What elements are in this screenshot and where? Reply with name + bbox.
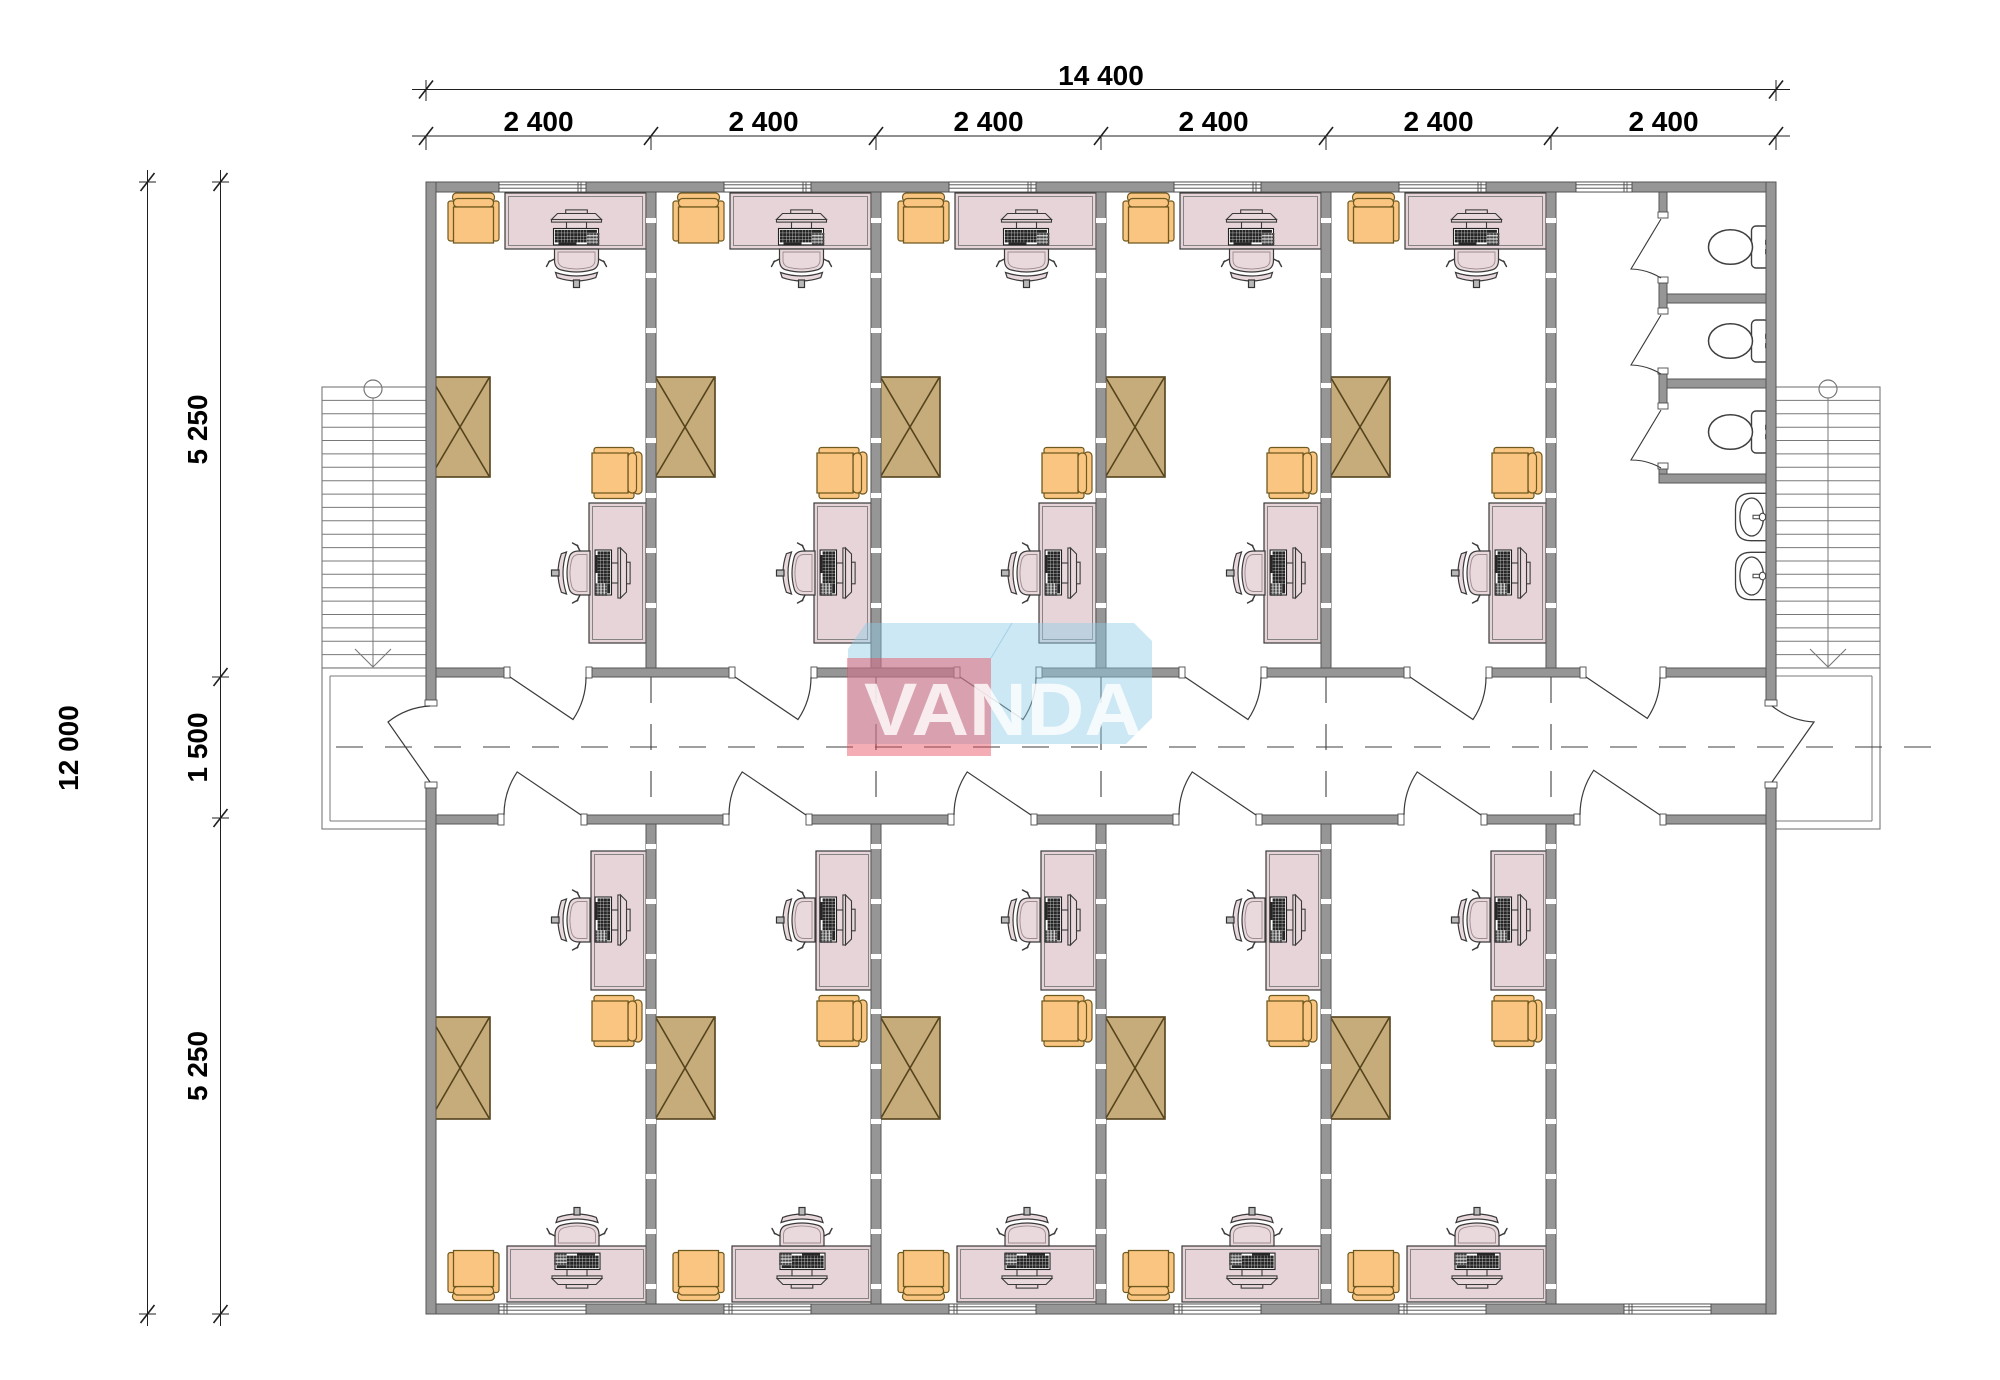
- svg-text:2 400: 2 400: [953, 106, 1023, 137]
- svg-text:1 500: 1 500: [182, 712, 213, 782]
- svg-text:VANDA: VANDA: [864, 668, 1142, 751]
- svg-text:2 400: 2 400: [1403, 106, 1473, 137]
- svg-text:5 250: 5 250: [182, 394, 213, 464]
- svg-text:2 400: 2 400: [1178, 106, 1248, 137]
- svg-text:2 400: 2 400: [728, 106, 798, 137]
- svg-text:2 400: 2 400: [1628, 106, 1698, 137]
- svg-text:5 250: 5 250: [182, 1031, 213, 1101]
- svg-text:2 400: 2 400: [503, 106, 573, 137]
- svg-text:14 400: 14 400: [1058, 60, 1144, 91]
- svg-text:12 000: 12 000: [53, 705, 84, 791]
